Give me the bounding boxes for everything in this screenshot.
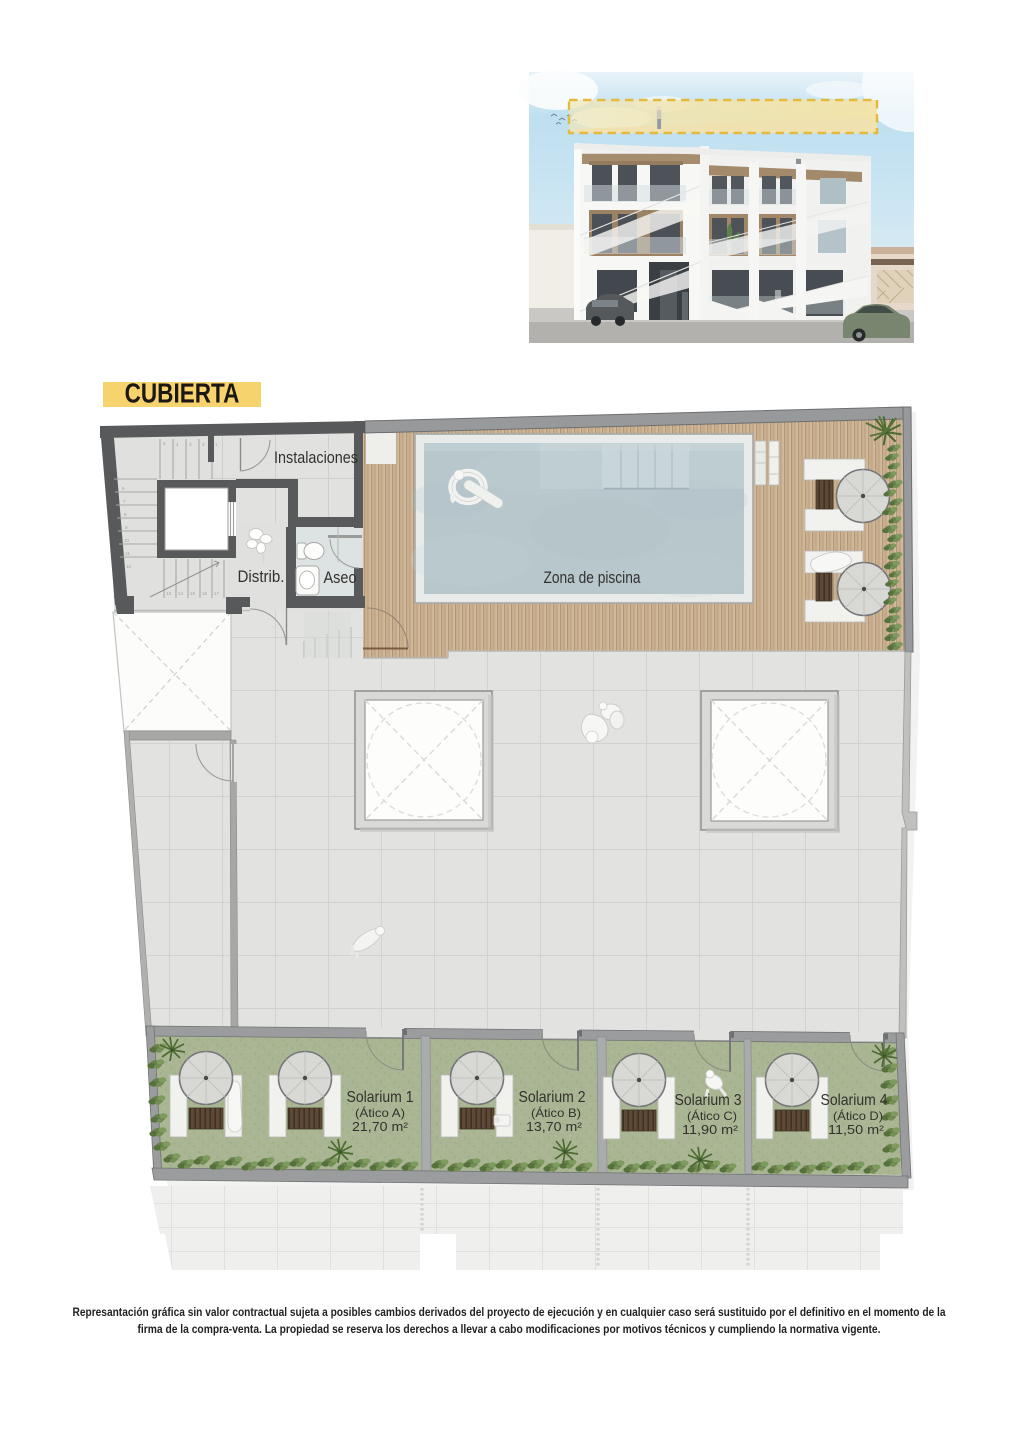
svg-text:2: 2 — [202, 442, 205, 447]
svg-text:Solarium 2: Solarium 2 — [519, 1089, 586, 1106]
svg-text:5: 5 — [163, 441, 166, 446]
svg-text:12: 12 — [126, 564, 132, 569]
svg-text:6: 6 — [122, 486, 125, 491]
svg-text:Represantación gráfica sin val: Represantación gráfica sin valor contrac… — [73, 1305, 946, 1319]
svg-text:16: 16 — [202, 591, 208, 596]
svg-text:Zona de piscina: Zona de piscina — [544, 568, 641, 587]
svg-text:Aseo: Aseo — [324, 568, 357, 587]
svg-text:Solarium 1: Solarium 1 — [347, 1089, 414, 1106]
svg-text:1: 1 — [215, 442, 218, 447]
svg-text:13: 13 — [166, 591, 172, 596]
svg-text:(Ático D): (Ático D) — [833, 1108, 883, 1123]
svg-text:4: 4 — [176, 442, 179, 447]
svg-text:Solarium 3: Solarium 3 — [675, 1092, 742, 1109]
svg-text:firma de la compra-venta. La p: firma de la compra-venta. La propiedad s… — [138, 1322, 881, 1336]
svg-text:(Ático B): (Ático B) — [531, 1105, 581, 1120]
svg-text:14: 14 — [178, 591, 184, 596]
svg-text:15: 15 — [190, 591, 196, 596]
svg-text:11,50 m²: 11,50 m² — [828, 1122, 885, 1137]
svg-text:13,70 m²: 13,70 m² — [526, 1119, 583, 1134]
svg-text:(Ático C): (Ático C) — [687, 1108, 737, 1123]
svg-text:Solarium 4: Solarium 4 — [821, 1092, 888, 1109]
svg-text:11: 11 — [125, 551, 130, 556]
svg-text:3: 3 — [189, 442, 192, 447]
svg-text:7: 7 — [123, 499, 126, 504]
svg-text:10: 10 — [124, 538, 130, 543]
svg-text:Distrib.: Distrib. — [238, 567, 285, 586]
svg-text:Instalaciones: Instalaciones — [274, 448, 358, 467]
svg-text:(Ático A): (Ático A) — [355, 1105, 405, 1120]
svg-text:21,70 m²: 21,70 m² — [352, 1119, 409, 1134]
svg-text:17: 17 — [214, 591, 220, 596]
svg-text:CUBIERTA: CUBIERTA — [125, 378, 240, 409]
svg-text:8: 8 — [124, 512, 127, 517]
svg-text:11,90 m²: 11,90 m² — [682, 1122, 739, 1137]
svg-text:9: 9 — [125, 525, 128, 530]
